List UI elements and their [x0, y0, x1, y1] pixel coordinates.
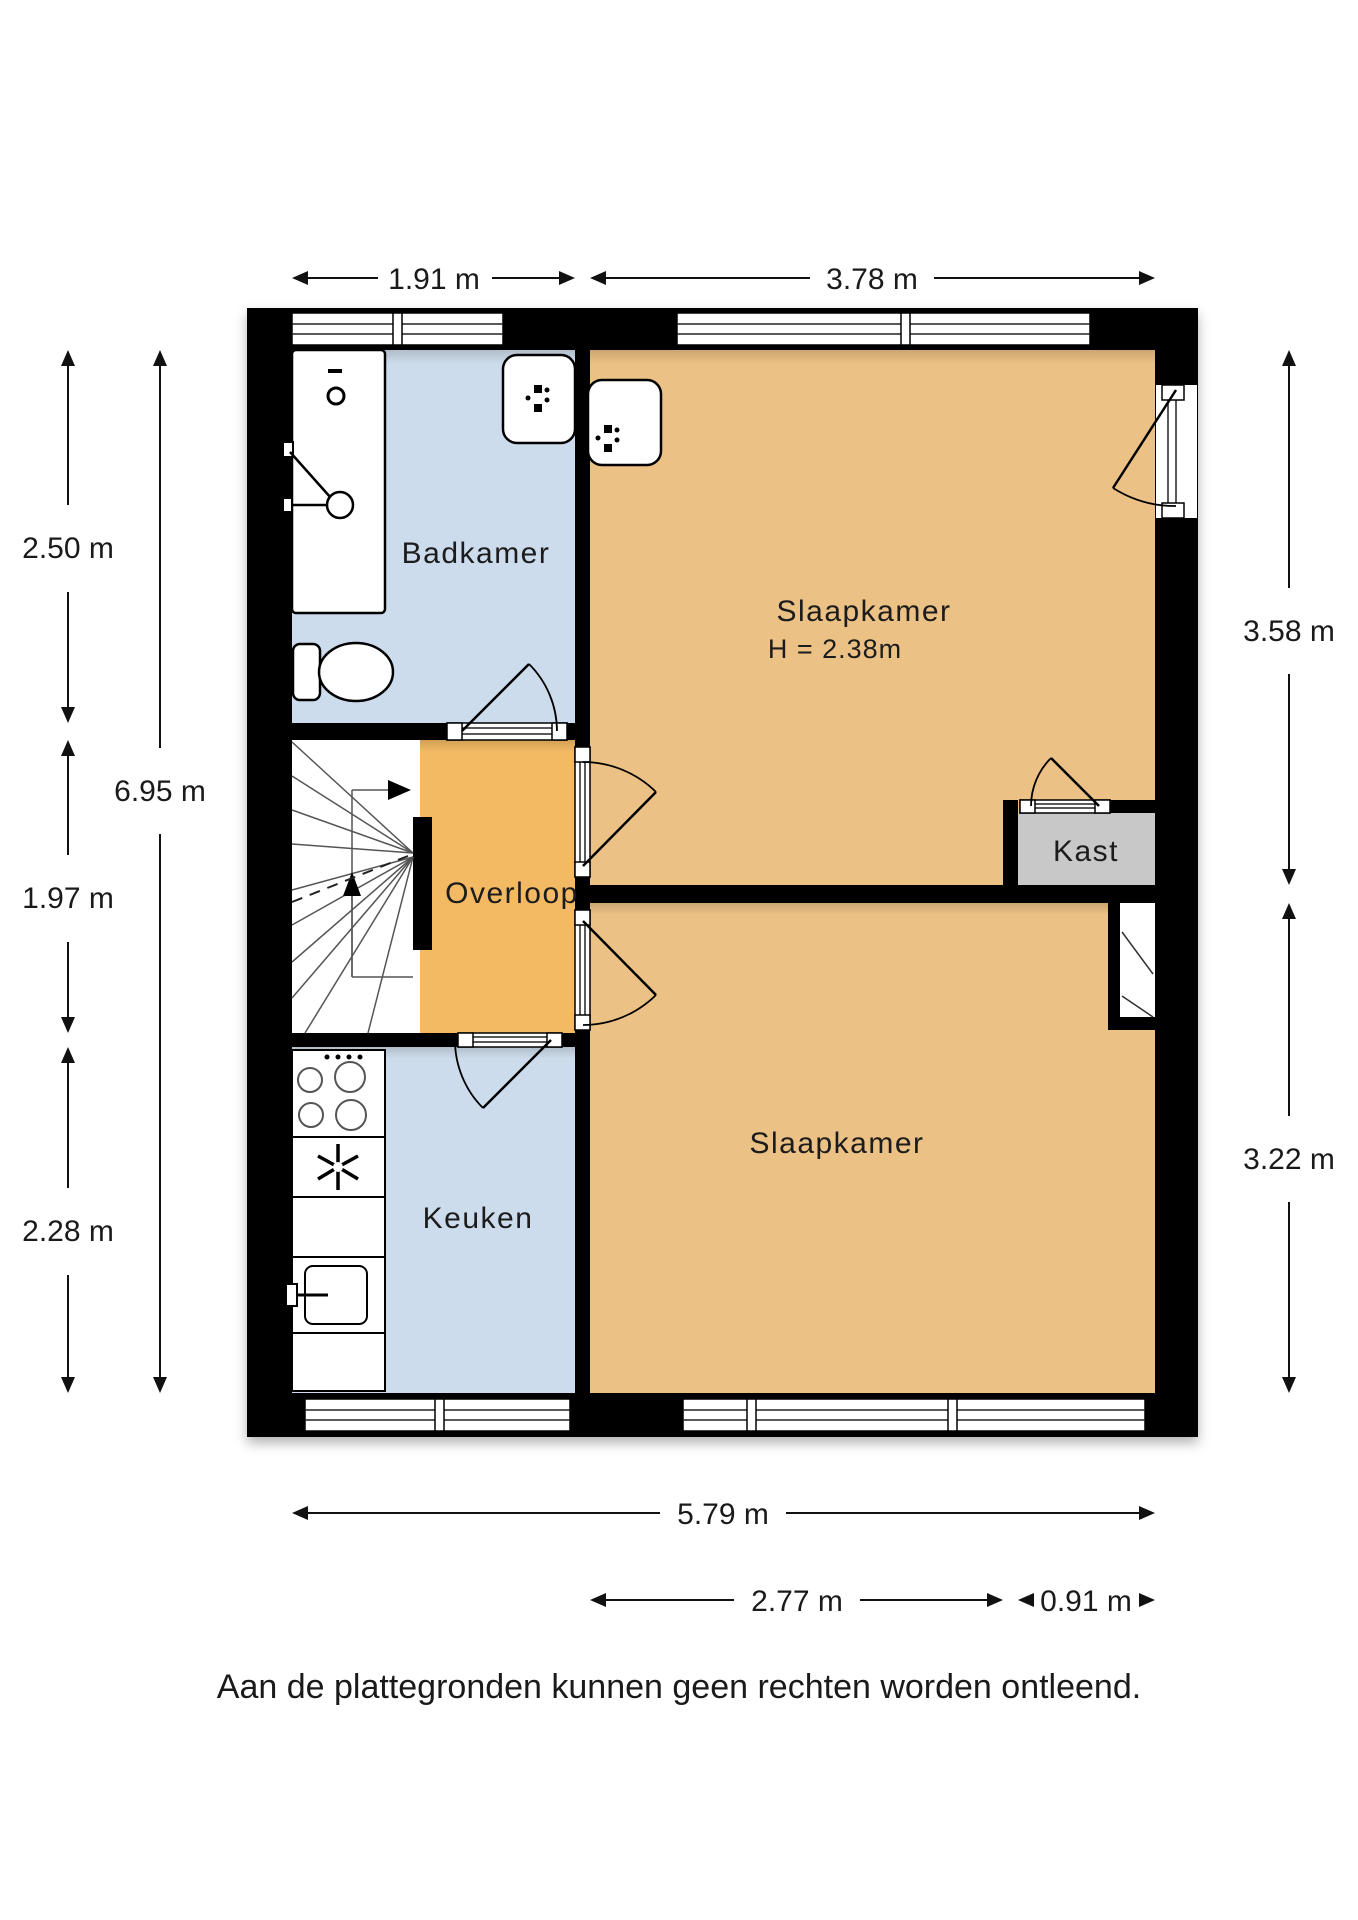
counter-segment [292, 1333, 385, 1391]
shade [590, 903, 1155, 915]
boiler-unit-badkamer [503, 355, 575, 443]
window-slaapkamer1-top [677, 313, 1090, 345]
dim-bottom-total: 5.79 m [677, 1498, 769, 1531]
wall-core-lower [575, 1030, 590, 1393]
shade [420, 740, 575, 752]
toilet [293, 643, 393, 701]
shaft [1120, 903, 1155, 1017]
room-label-slaapkamer1: Slaapkamer [776, 595, 951, 628]
wall-shaft-bottom [1108, 1017, 1155, 1030]
room-label-overloop: Overloop [445, 877, 579, 910]
shower-head-icon [327, 492, 353, 518]
dim-left-middle: 1.97 m [22, 882, 114, 915]
room-label-slaapkamer2: Slaapkamer [749, 1127, 924, 1160]
sink-icon [286, 1257, 385, 1333]
floorplan-canvas: Badkamer Slaapkamer H = 2.38m Overloop K… [0, 0, 1358, 1920]
dim-left-lower: 2.28 m [22, 1215, 114, 1248]
window-badkamer-top [292, 313, 503, 345]
tap-handle [283, 498, 292, 512]
dim-top-left: 1.91 m [388, 263, 480, 296]
floorplan: Badkamer Slaapkamer H = 2.38m Overloop K… [247, 308, 1198, 1437]
wall-badkamer-overloop-right [567, 723, 575, 740]
wall-badkamer-overloop-left [292, 723, 447, 740]
stove-icon [292, 1050, 385, 1137]
fan-icon [292, 1137, 385, 1197]
room-label-badkamer: Badkamer [402, 537, 551, 570]
wall-kast-left [1003, 800, 1018, 885]
wall-between-bedrooms [575, 885, 1198, 903]
room-label-keuken: Keuken [423, 1202, 534, 1235]
floorplan-page: Badkamer Slaapkamer H = 2.38m Overloop K… [0, 0, 1358, 1920]
counter-segment [292, 1197, 385, 1257]
dim-right-upper: 3.58 m [1243, 615, 1335, 648]
bathtub [283, 350, 385, 613]
wall-stair-stub [413, 817, 432, 950]
wall-overloop-keuken-right [562, 1033, 575, 1047]
dim-right-lower: 3.22 m [1243, 1143, 1335, 1176]
room-height-note: H = 2.38m [768, 634, 902, 664]
shade [590, 350, 1155, 364]
dim-bottom-kast: 0.91 m [1040, 1585, 1132, 1618]
wall-overloop-keuken-left [292, 1033, 458, 1047]
wall-left [247, 308, 292, 1437]
disclaimer-text: Aan de plattegronden kunnen geen rechten… [217, 1668, 1141, 1706]
dim-top-right: 3.78 m [826, 263, 918, 296]
window-slaapkamer2-bottom [683, 1399, 1145, 1431]
dim-left-total: 6.95 m [114, 775, 206, 808]
window-keuken-bottom [305, 1399, 570, 1431]
kitchen-counter [286, 1050, 385, 1391]
wall-shaft-left [1108, 903, 1120, 1017]
boiler-unit-slaapkamer [588, 380, 661, 465]
wall-kast-top-right [1110, 800, 1155, 813]
dim-left-upper: 2.50 m [22, 532, 114, 565]
room-label-kast: Kast [1053, 835, 1119, 868]
dim-bottom-room: 2.77 m [751, 1585, 843, 1618]
